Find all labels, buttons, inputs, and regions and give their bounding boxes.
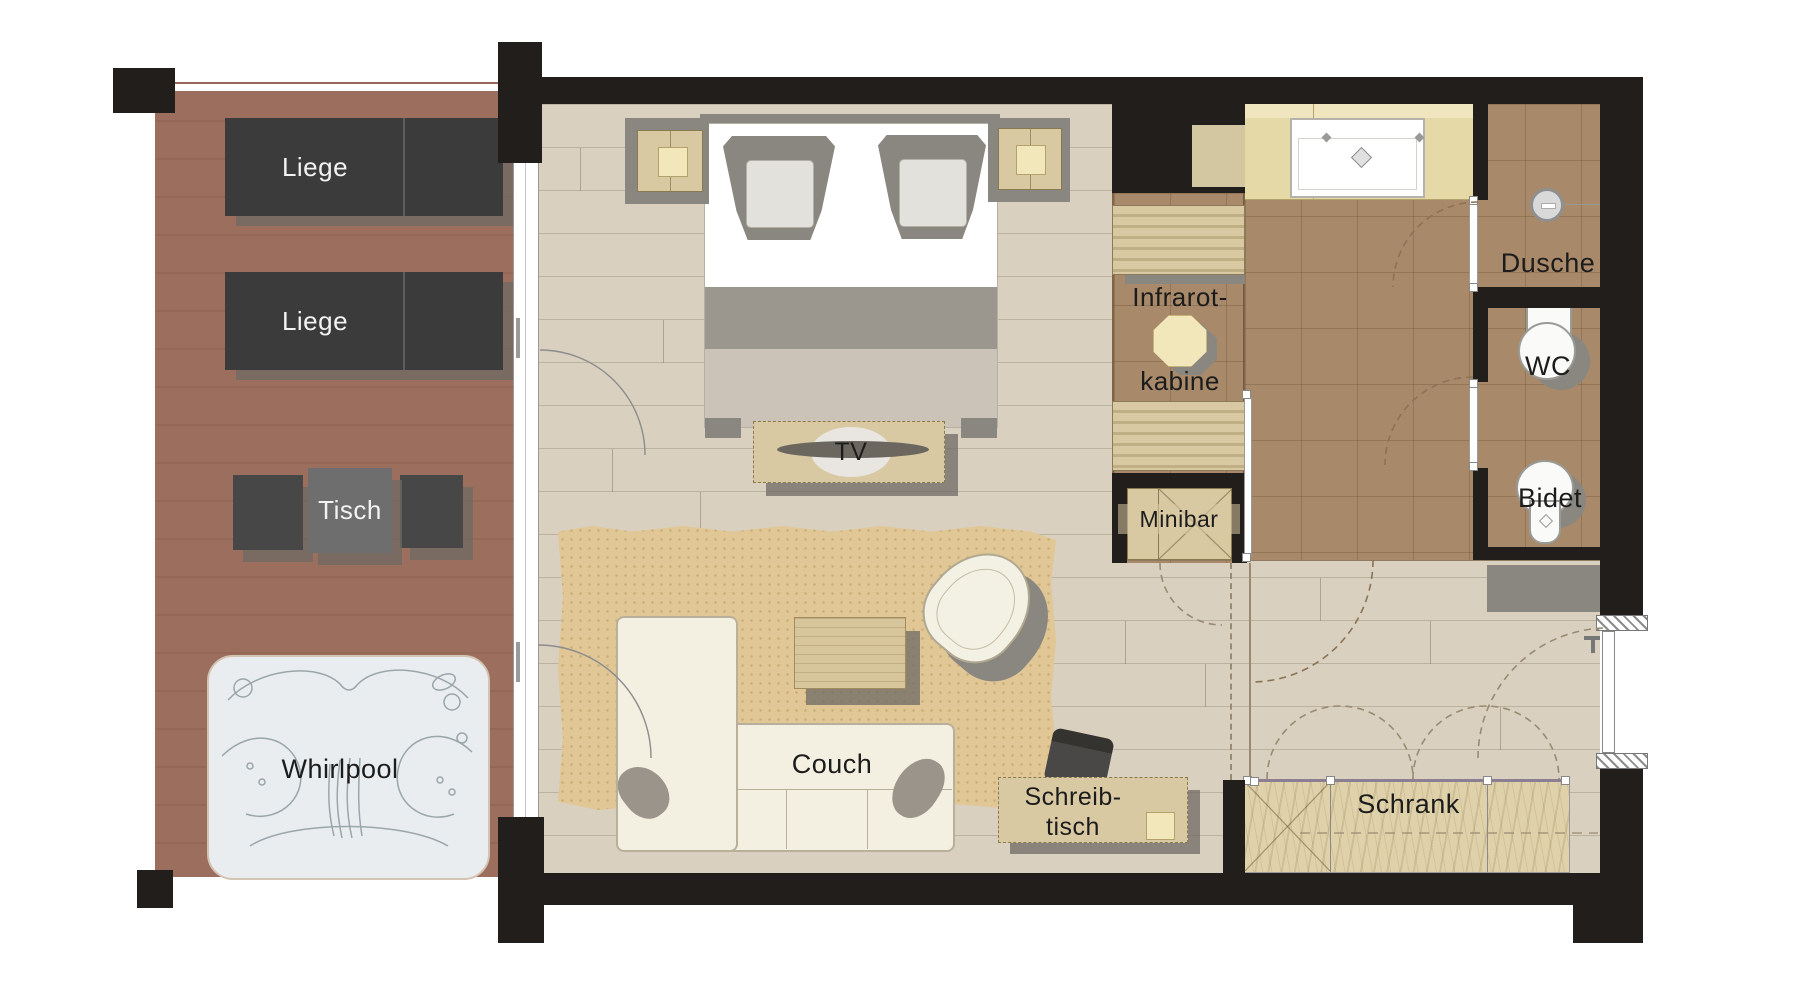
- wall-pillar-top-left: [498, 42, 542, 163]
- wall-top: [498, 77, 1643, 104]
- door-hinge: [1242, 553, 1251, 562]
- couch-cushion-divider: [786, 789, 787, 849]
- door-hinge: [1250, 777, 1259, 786]
- floor-plan: Liege Liege Tisch: [0, 0, 1800, 1000]
- lamp-right: [1016, 145, 1046, 175]
- plank-joint: [1125, 621, 1126, 664]
- plank-joint: [1430, 621, 1431, 664]
- desk-label-line1: Schreib-: [998, 782, 1148, 812]
- terrace-chair-left: [233, 475, 303, 550]
- terrace-railing-top: [155, 84, 515, 91]
- bed-foot-right: [961, 418, 997, 438]
- couch-label: Couch: [752, 736, 912, 792]
- minibar-wall-top: [1112, 473, 1247, 488]
- wall-divider-sink-shower: [1473, 104, 1488, 200]
- infrared-label-line1: Infrarot-: [1110, 282, 1250, 312]
- lounger-bottom-label: Liege: [250, 272, 380, 370]
- plank-joint: [580, 148, 581, 191]
- desk-label-line2: tisch: [998, 812, 1148, 842]
- table-label: Tisch: [296, 468, 404, 553]
- whirlpool-label: Whirlpool: [255, 752, 425, 786]
- desk-lamp: [1146, 812, 1175, 840]
- plank-joint: [1500, 707, 1501, 750]
- window-wall: [513, 163, 539, 817]
- lounger-divider: [403, 118, 405, 216]
- shower-head: [1530, 188, 1564, 222]
- hall-cabinet: [1487, 565, 1600, 612]
- window-dimension-tick: [516, 318, 520, 358]
- lounger-top-label: Liege: [250, 118, 380, 216]
- bath-threshold-line: [1112, 560, 1600, 561]
- plank-joint: [1205, 664, 1206, 707]
- lamp-left: [658, 147, 688, 177]
- wall-right-upper: [1600, 77, 1643, 622]
- door-hinge: [1469, 283, 1478, 292]
- bath-door-guide-dashed: [1230, 563, 1232, 780]
- wall-wc-left: [1473, 308, 1488, 382]
- tv-label: TV: [801, 427, 901, 477]
- entry-door-handle: [1591, 640, 1595, 653]
- shower-door-leaf: [1469, 204, 1478, 286]
- bath-door-leaf: [1244, 397, 1252, 557]
- wall-pillar-mid-bottom: [1223, 780, 1245, 875]
- bed-foot-left: [705, 418, 741, 438]
- infrared-bench-bottom: [1112, 401, 1245, 471]
- bidet-label: Bidet: [1505, 482, 1595, 514]
- door-hinge: [1242, 390, 1251, 399]
- bed-foot-blanket: [705, 349, 997, 427]
- terrace-chair-right: [400, 475, 463, 548]
- plank-joint: [612, 449, 613, 492]
- wall-shower-bottom: [1473, 287, 1613, 308]
- terrace-post-top-left: [113, 68, 175, 113]
- lounger-divider: [403, 272, 405, 370]
- wardrobe-divider: [1487, 780, 1488, 872]
- wall-bidet-bottom: [1473, 547, 1615, 560]
- shower-label: Dusche: [1480, 248, 1616, 278]
- bath-door-wall-line: [1249, 563, 1251, 780]
- entry-door-leaf: [1602, 631, 1615, 753]
- entry-door-frame-top: [1596, 615, 1648, 631]
- coffee-table: [794, 617, 906, 689]
- wc-door-leaf: [1469, 386, 1478, 466]
- couch-chaise: [616, 616, 738, 852]
- terrace-post-bottom-left: [137, 870, 173, 908]
- plank-joint: [663, 320, 664, 363]
- couch-cushion-divider: [867, 789, 868, 849]
- pillow-right-cushion: [899, 159, 967, 227]
- plank-joint: [1320, 578, 1321, 621]
- shower-head-slot: [1541, 203, 1556, 209]
- bed-blanket-band: [705, 287, 997, 349]
- wall-corner-bottom-left: [498, 817, 544, 943]
- wardrobe-handle: [1561, 776, 1570, 785]
- wall-niche-beige: [1192, 125, 1245, 187]
- shower-arm-line: [1562, 204, 1600, 205]
- wardrobe-label: Schrank: [1330, 784, 1487, 824]
- entry-door-frame-bottom: [1596, 753, 1648, 769]
- door-hinge: [1469, 462, 1478, 471]
- wall-corner-bottom-right: [1573, 873, 1643, 943]
- infrared-label-line2: kabine: [1110, 366, 1250, 396]
- wc-label: WC: [1513, 350, 1583, 382]
- minibar-label: Minibar: [1118, 504, 1240, 534]
- door-hinge: [1469, 196, 1478, 205]
- window-dimension-tick: [516, 642, 520, 682]
- pillow-left-cushion: [746, 160, 814, 228]
- wardrobe-left-door: [1245, 782, 1330, 871]
- door-hinge: [1469, 379, 1478, 388]
- wall-bottom: [498, 873, 1643, 905]
- infrared-bench-top: [1112, 205, 1245, 275]
